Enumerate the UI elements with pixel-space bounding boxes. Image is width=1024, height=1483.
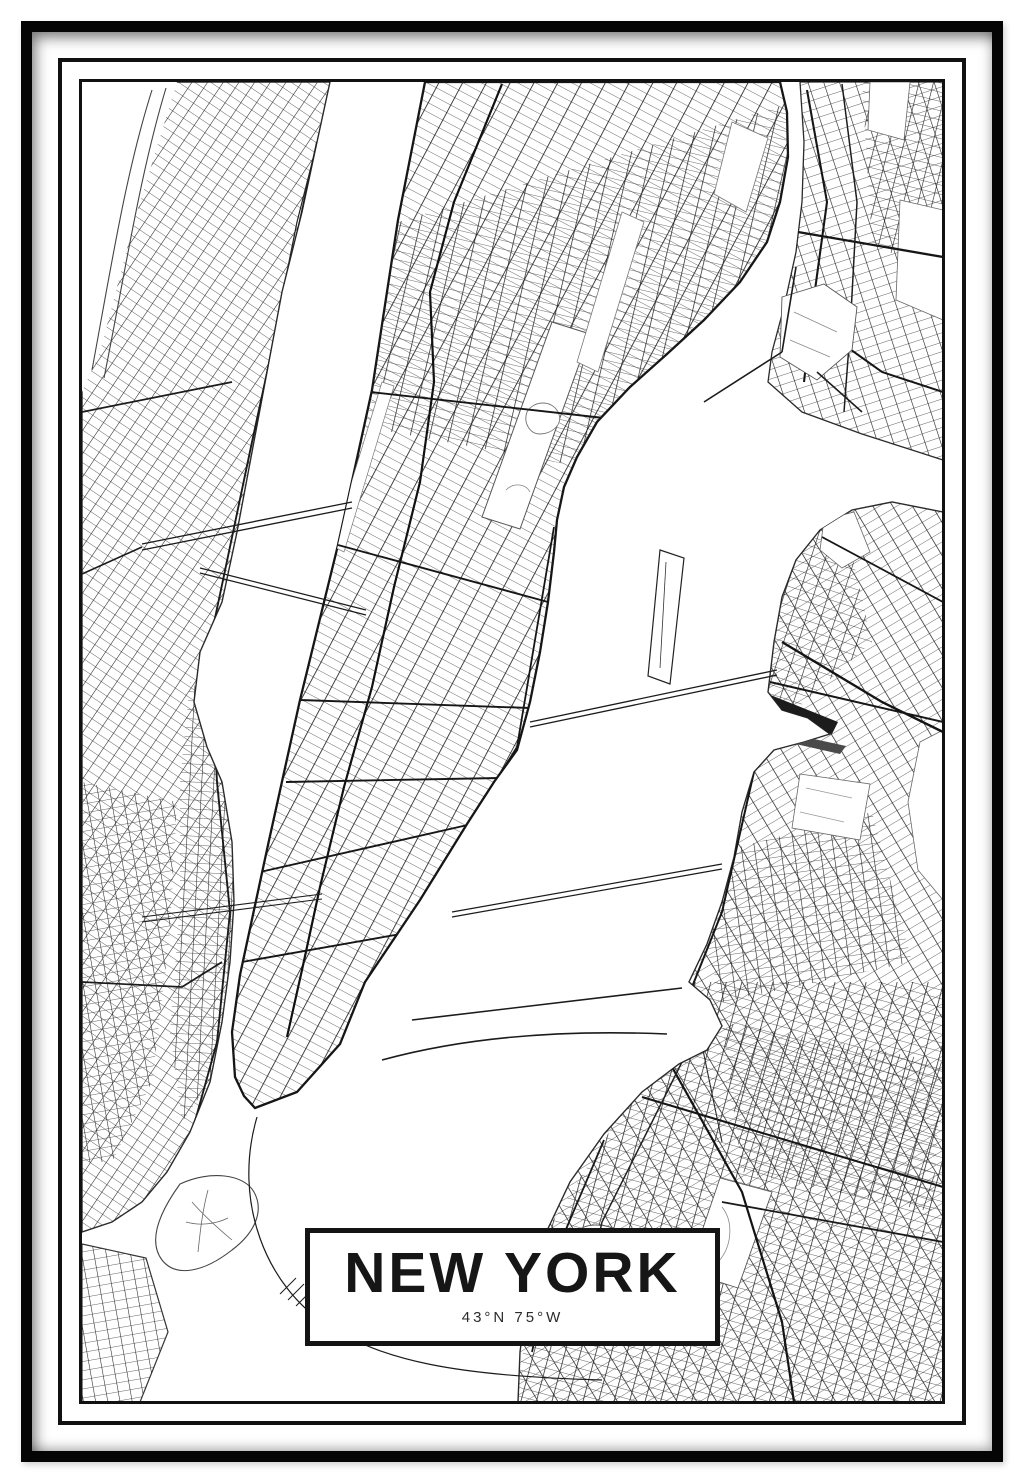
picture-frame: NEW YORK 43°N 75°W: [21, 21, 1003, 1462]
map-title-box: NEW YORK 43°N 75°W: [305, 1228, 720, 1346]
poster-coordinates: 43°N 75°W: [462, 1309, 564, 1326]
poster-title: NEW YORK: [344, 1248, 680, 1299]
mat-inner-border: NEW YORK 43°N 75°W: [58, 58, 966, 1425]
nyc-street-map: [82, 82, 943, 1402]
map-border: NEW YORK 43°N 75°W: [79, 79, 945, 1404]
poster-photo: NEW YORK 43°N 75°W: [0, 0, 1024, 1483]
